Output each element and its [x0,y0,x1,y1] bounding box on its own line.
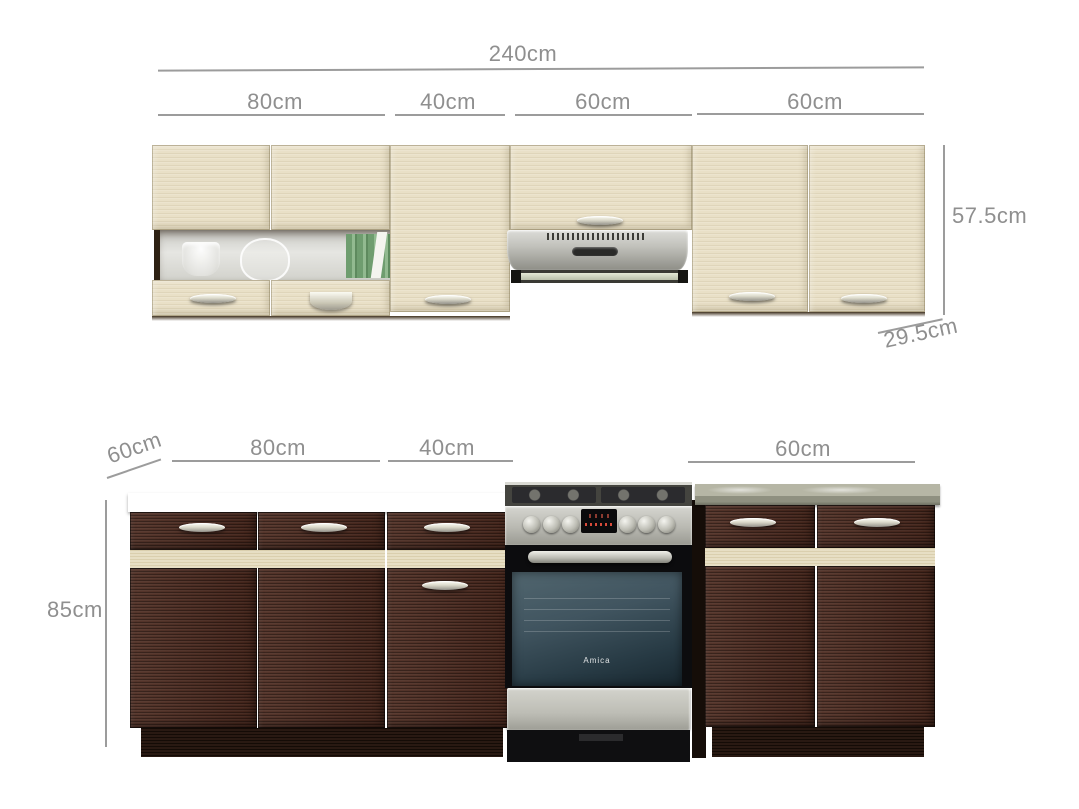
wall-segment-label-60a: 60cm [575,92,631,112]
base-height-line [105,500,107,747]
hood-lamp-strip [511,270,688,283]
sink-bowl [801,486,881,494]
cooker-control-panel [505,506,692,545]
oven-handle [528,551,672,563]
glass-display-shelf [154,230,396,280]
accent-stripe [705,548,935,566]
wall-height-line [943,145,945,315]
base-segment-label-40: 40cm [419,438,475,458]
display-digits [585,523,613,526]
hood-vent-slots [547,233,647,240]
total-width-line [158,66,924,71]
display-digits [589,514,609,518]
hob-grate [512,487,596,503]
cooker-display [581,509,617,533]
cooker-knob [638,516,655,533]
base-cabinet-sink [703,505,935,727]
base-cabinet-80 [130,512,385,728]
base-segment-line-80 [172,460,380,462]
base-cabinet-door [387,568,512,728]
drawer-handle [854,518,900,527]
wall-cabinet-shadow [152,316,510,321]
wall-cabinet-door [271,145,390,230]
flap-handle [190,294,236,303]
hob-grate [601,487,685,503]
display-vase [182,242,220,276]
oven-door: Amica [505,545,692,688]
base-cabinet-door [817,566,935,727]
accent-stripe [130,550,385,568]
door-handle [577,216,623,225]
sink-bowl [707,486,773,494]
base-segment-label-60: 60cm [775,439,831,459]
door-handle [729,292,775,301]
cooker-hob [505,482,692,506]
accent-stripe [387,550,512,568]
base-segment-line-60 [688,461,915,463]
cooker-storage-drawer [507,688,690,730]
flap-bowl-handle [310,292,352,310]
base-segment-label-80: 80cm [250,438,306,458]
base-height-label: 85cm [47,600,99,620]
hood-lamp-glass [521,273,678,280]
wall-segment-label-60b: 60cm [787,92,843,112]
wall-segment-line-40 [395,114,505,116]
cooker-base [507,730,690,762]
wall-depth-label: 29.5cm [882,316,960,351]
wall-cabinet-40 [390,145,510,312]
wall-segment-label-40: 40cm [420,92,476,112]
wall-cabinet-door [692,145,808,312]
wall-height-label: 57.5cm [952,206,1027,226]
base-plinth-left [141,728,503,757]
base-cabinet-door [258,568,385,728]
oven-glass-reflection [524,598,670,642]
door-handle [841,294,887,303]
oven-brand-logo: Amica [512,656,682,665]
wall-segment-line-80 [158,114,385,116]
base-cabinet-door [705,566,815,727]
wall-cabinet-60 [692,145,925,312]
sink-top [695,484,940,505]
drawer-handle [179,523,225,532]
base-cabinet-door [130,568,257,728]
hood-lamp-endcap [511,270,521,283]
hood-control-panel [572,247,618,256]
base-cabinet-40 [385,512,512,728]
wall-cabinet-hood [510,145,692,230]
door-handle [425,295,471,304]
wall-segment-line-60b [697,113,924,115]
wall-cabinet-door [152,145,270,230]
display-glass-jug [240,238,290,282]
cooker-knob [619,516,636,533]
oven-glass: Amica [512,572,682,686]
range-hood [507,230,688,270]
kitchen-dimension-diagram: 240cm 80cm 40cm 60cm 60cm [0,0,1079,809]
wall-cabinet-shadow [692,312,925,317]
countertop [128,493,513,512]
wall-cabinet-80 [152,145,390,316]
drawer-handle [301,523,347,532]
cooker-base-notch [579,734,623,741]
cooker-knob [562,516,579,533]
door-handle [422,581,468,590]
wall-segment-label-80: 80cm [247,92,303,112]
cooker-knob [543,516,560,533]
total-width-label: 240cm [489,44,558,64]
hood-lamp-endcap [678,270,688,283]
wall-cabinet-door [809,145,925,312]
cooker-knob [523,516,540,533]
drawer-handle [730,518,776,527]
drawer-handle [424,523,470,532]
cooker-knob [658,516,675,533]
cooker: Amica [505,482,692,762]
base-plinth-right [712,727,924,757]
base-segment-line-40 [388,460,513,462]
wall-segment-line-60a [515,114,692,116]
